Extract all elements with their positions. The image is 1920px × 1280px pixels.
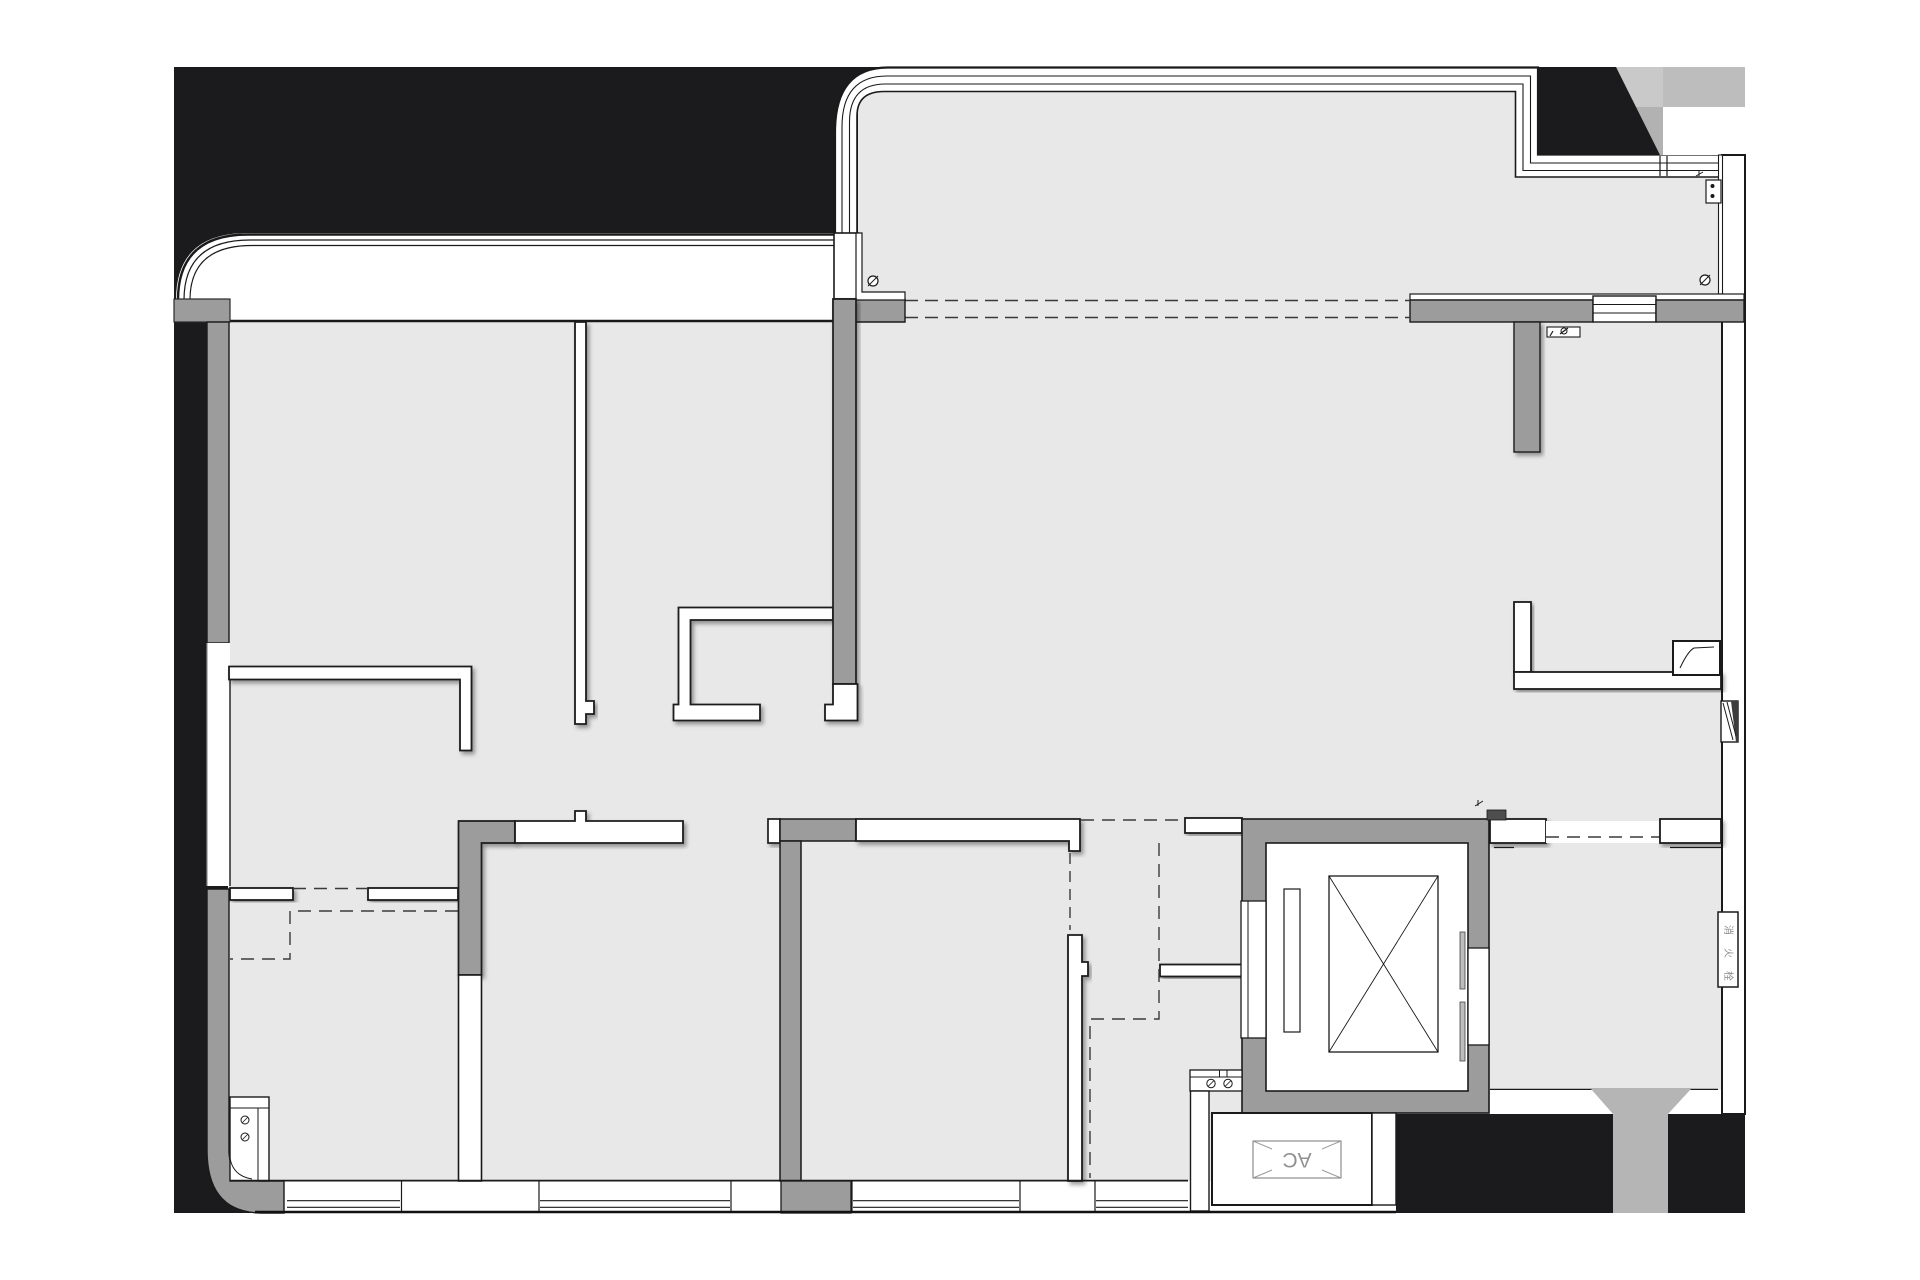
svg-text:火: 火 (1722, 948, 1734, 958)
svg-text:AC: AC (1282, 1148, 1311, 1171)
svg-text:栓: 栓 (1722, 971, 1735, 981)
svg-text:消: 消 (1722, 925, 1735, 935)
